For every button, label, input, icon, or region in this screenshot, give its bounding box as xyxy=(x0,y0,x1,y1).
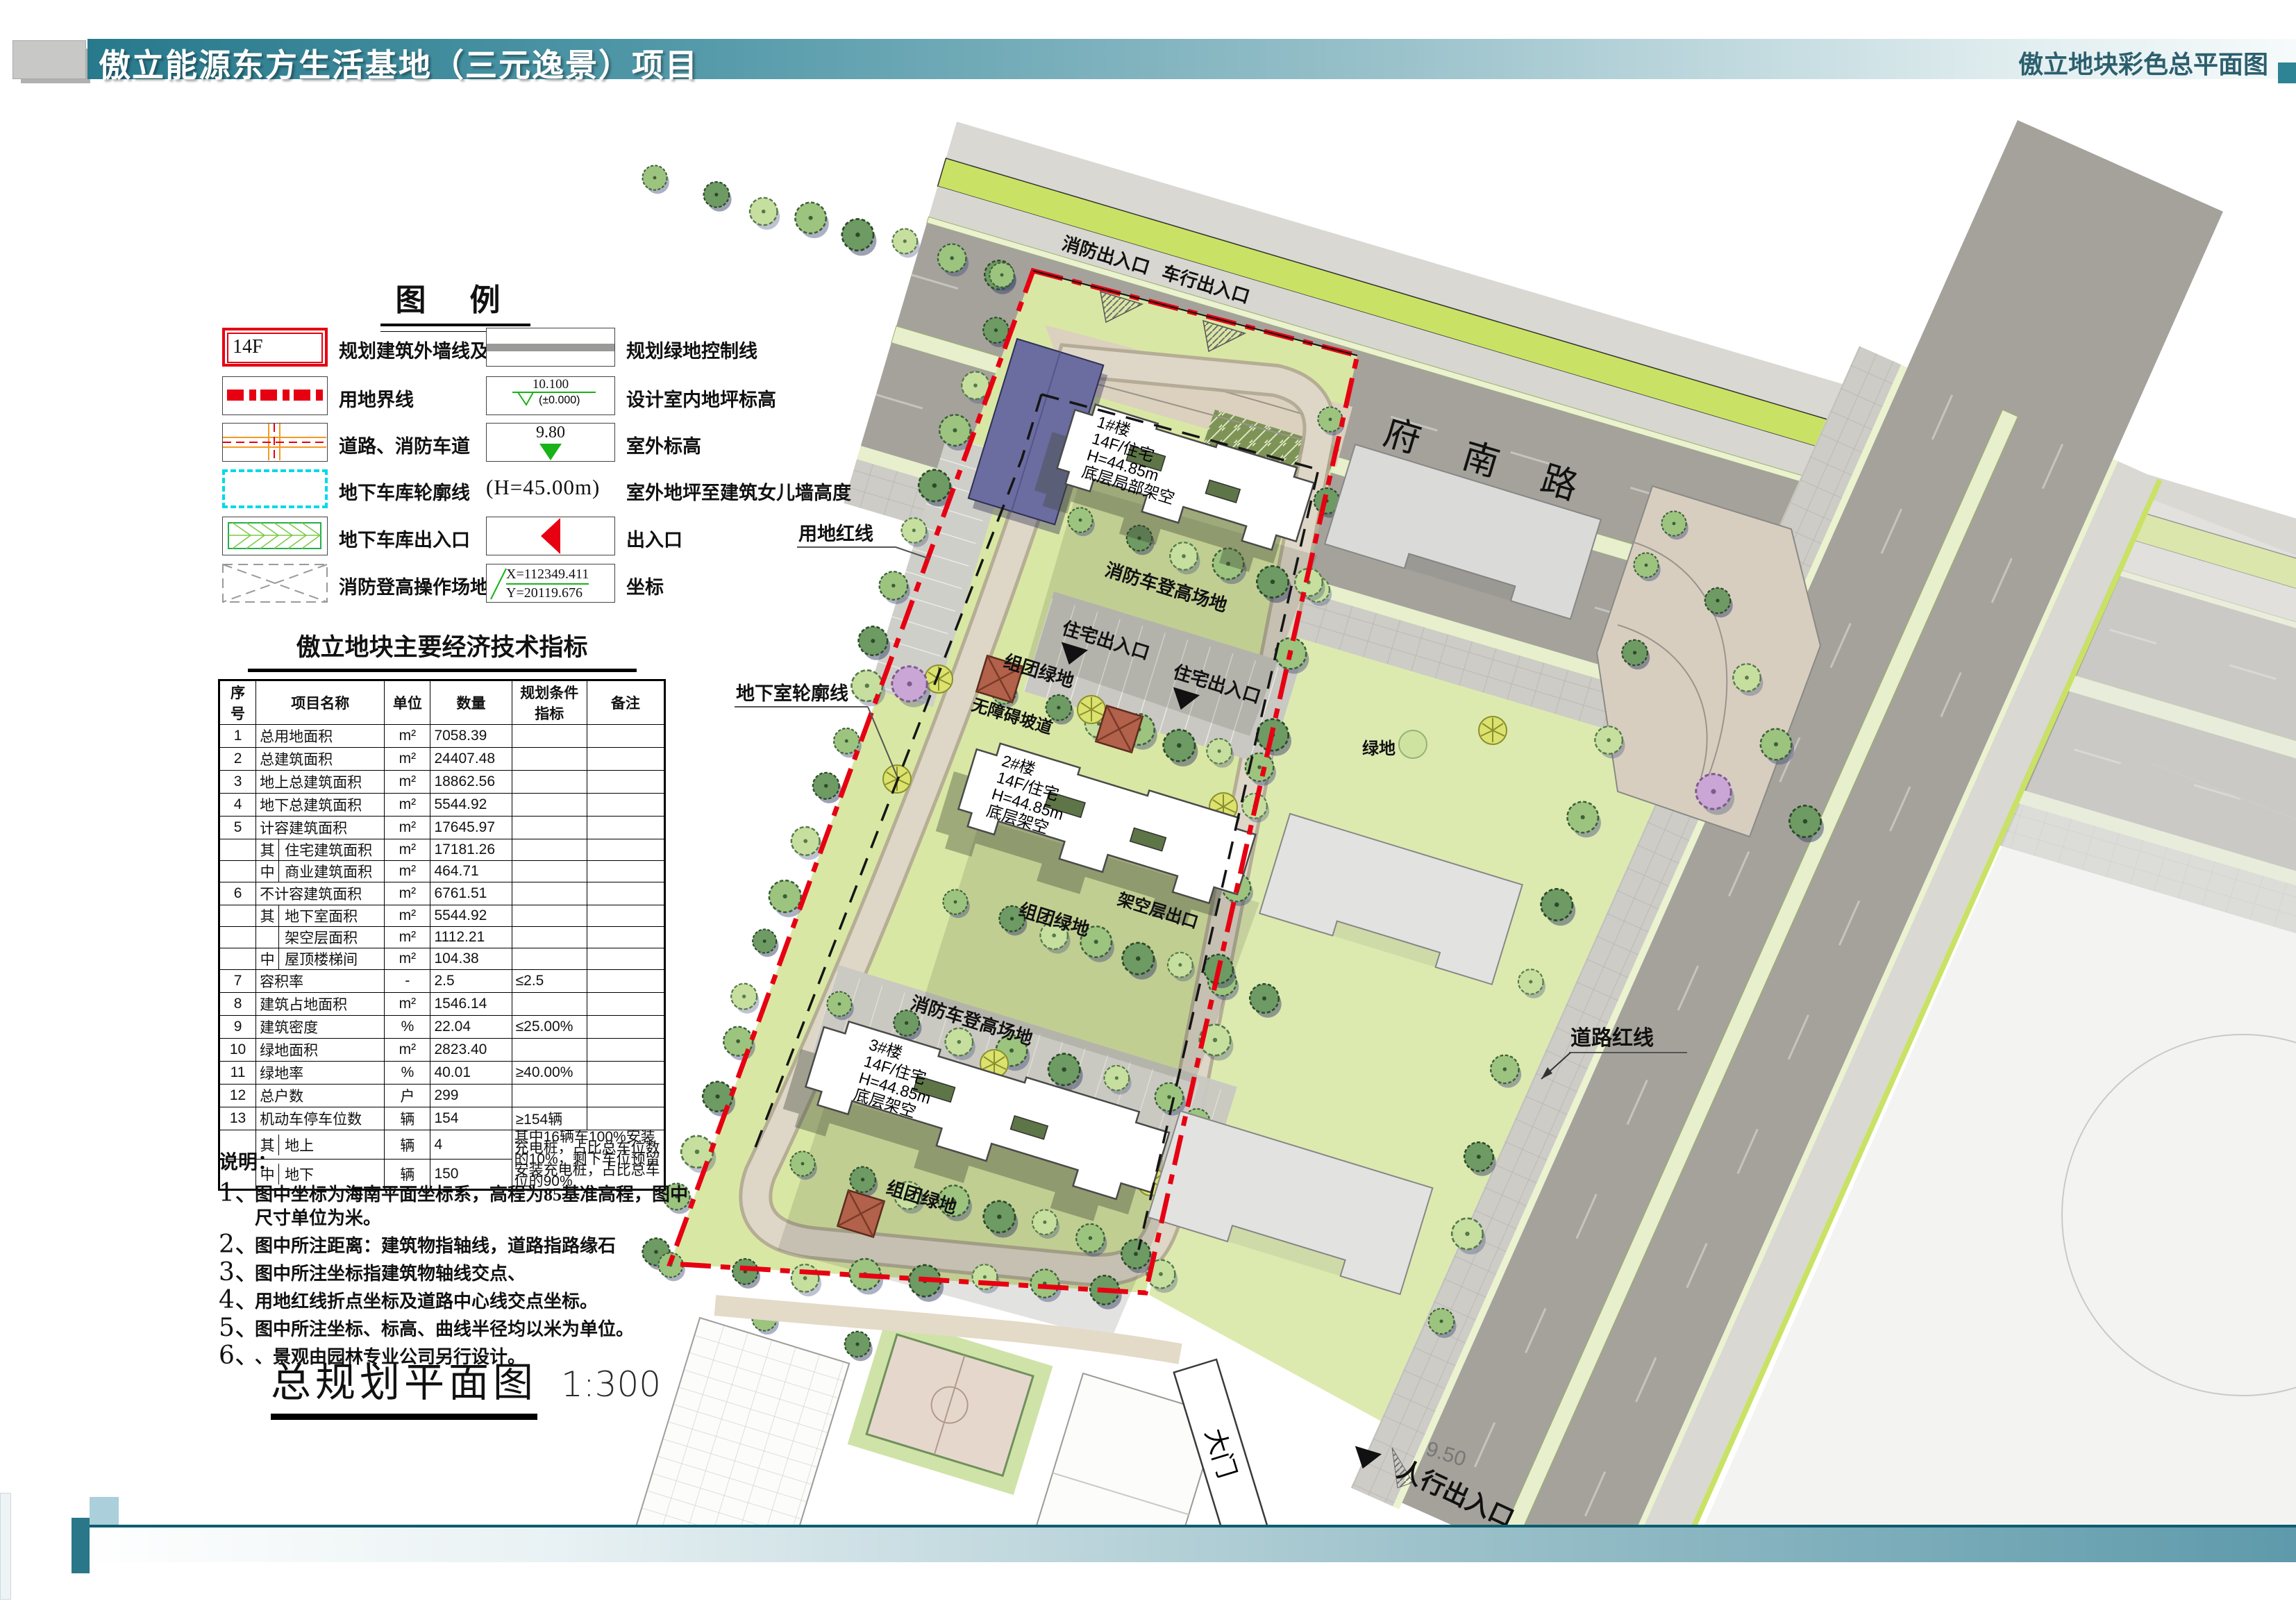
cell-plan: ≥40.00% xyxy=(512,1062,587,1085)
col-header: 数量 xyxy=(430,680,512,725)
cell-qty: 1546.14 xyxy=(430,993,512,1016)
cell-no xyxy=(219,948,256,970)
cell-unit: m² xyxy=(385,882,430,905)
corner-paper-block xyxy=(12,40,86,79)
legend-label: 消防登高操作场地 xyxy=(339,572,489,599)
cell-no: 6 xyxy=(219,882,256,905)
cell-plan xyxy=(512,817,587,839)
palm-tree xyxy=(1078,696,1105,723)
cell-plan xyxy=(512,1085,587,1107)
indicator-table: 序号 项目名称 单位 数量 规划条件指标 备注 1总用地面积m²7058.392… xyxy=(218,679,666,1191)
legend-label: 地下车库轮廓线 xyxy=(339,478,470,505)
cell-no: 13 xyxy=(219,1107,256,1130)
cell-qty: 154 xyxy=(430,1107,512,1130)
cell-qty: 17645.97 xyxy=(430,817,512,839)
cell-name: 中屋顶楼梯间 xyxy=(256,948,385,970)
col-header: 序号 xyxy=(219,680,256,725)
cell-name: 总建筑面积 xyxy=(256,748,385,771)
cell-name: 绿地率 xyxy=(256,1062,385,1085)
legend-label: 室外地坪至建筑女儿墙高度 xyxy=(626,478,851,505)
cell-no: 9 xyxy=(219,1016,256,1039)
table-row: 5计容建筑面积m²17645.97 xyxy=(219,817,665,839)
indicator-title-rule xyxy=(248,669,637,672)
cell-no: 8 xyxy=(219,993,256,1016)
table-row: 10绿地面积m²2823.40 xyxy=(219,1039,665,1062)
cell-name: 地下总建筑面积 xyxy=(256,794,385,817)
footer-accent-block xyxy=(72,1518,90,1573)
cell-qty: 17181.26 xyxy=(430,839,512,861)
cell-unit: m² xyxy=(385,839,430,861)
tree xyxy=(813,773,841,803)
tree xyxy=(703,1082,735,1116)
table-row: 其住宅建筑面积m²17181.26 xyxy=(219,839,665,861)
cell-unit: m² xyxy=(385,725,430,748)
cell-note xyxy=(587,748,664,771)
cell-name: 地上总建筑面积 xyxy=(256,771,385,794)
table-row: 架空层面积m²1112.21 xyxy=(219,927,665,948)
tree xyxy=(859,626,891,660)
plan-name: 总规划平面图 xyxy=(271,1350,537,1420)
drawing-sheet: 东府南路 xyxy=(0,0,2296,1624)
building-floors-sample: 14F xyxy=(227,333,323,363)
road-symbol xyxy=(222,423,328,462)
cell-note xyxy=(587,861,664,882)
legend-label: 用地界线 xyxy=(339,385,414,412)
cell-note xyxy=(587,1039,664,1062)
cell-unit: % xyxy=(385,1062,430,1085)
tree xyxy=(731,984,759,1014)
cell-name: 其地下室面积 xyxy=(256,905,385,927)
cell-note xyxy=(587,905,664,927)
cell-qty: 24407.48 xyxy=(430,748,512,771)
legend-title: 图 例 xyxy=(387,275,526,319)
legend-label: 地下车库出入口 xyxy=(339,525,470,552)
fire-operation-symbol xyxy=(222,564,328,603)
table-row: 12总户数户299 xyxy=(219,1085,665,1107)
cell-no: 5 xyxy=(219,817,256,839)
table-row: 7容积率-2.5≤2.5 xyxy=(219,970,665,993)
legend-label: 规划绿地控制线 xyxy=(626,336,757,363)
cell-plan xyxy=(512,882,587,905)
cell-unit: m² xyxy=(385,1039,430,1062)
col-header: 规划条件指标 xyxy=(512,680,587,725)
cell-plan xyxy=(512,748,587,771)
tree xyxy=(769,880,804,917)
cell-plan xyxy=(512,861,587,882)
cell-no xyxy=(219,927,256,948)
cell-note xyxy=(587,839,664,861)
table-row: 3地上总建筑面积m²18862.56 xyxy=(219,771,665,794)
legend-label: 室外标高 xyxy=(626,431,701,458)
cell-qty: 5544.92 xyxy=(430,905,512,927)
cell-name: 中商业建筑面积 xyxy=(256,861,385,882)
col-header: 单位 xyxy=(385,680,430,725)
tree xyxy=(723,1027,755,1060)
cell-qty: 299 xyxy=(430,1085,512,1107)
cell-note xyxy=(587,948,664,970)
outdoor-elevation-symbol: 9.80 xyxy=(486,423,615,462)
legend-label: 出入口 xyxy=(626,525,682,552)
cell-plan xyxy=(512,1039,587,1062)
note-item: 1、图中坐标为海南平面坐标系，高程为85基准高程，图中尺寸单位为米。 xyxy=(219,1180,705,1230)
tree xyxy=(750,198,780,230)
garage-entrance-symbol xyxy=(222,517,328,555)
coordinate-y: Y=20119.676 xyxy=(506,585,583,601)
outdoor-elevation-value: 9.80 xyxy=(487,424,614,442)
cell-unit: m² xyxy=(385,861,430,882)
tree xyxy=(791,827,823,860)
cell-qty: 2.5 xyxy=(430,970,512,993)
cell-unit: 户 xyxy=(385,1085,430,1107)
tree xyxy=(845,1332,873,1362)
coordinate-symbol: X=112349.411 Y=20119.676 xyxy=(486,564,615,603)
tree xyxy=(642,165,669,194)
cell-plan xyxy=(512,948,587,970)
cell-name: 机动车停车位数 xyxy=(256,1107,385,1130)
col-header: 备注 xyxy=(587,680,664,725)
cell-name: 其住宅建筑面积 xyxy=(256,839,385,861)
cell-plan xyxy=(512,725,587,748)
footer-left-strip xyxy=(0,1493,11,1600)
cell-no: 4 xyxy=(219,794,256,817)
garage-outline-symbol xyxy=(222,469,328,508)
cell-name: 绿地面积 xyxy=(256,1039,385,1062)
cell-plan: ≥154辆 xyxy=(512,1107,587,1130)
cell-name: 总户数 xyxy=(256,1085,385,1107)
cell-unit: - xyxy=(385,970,430,993)
cell-no xyxy=(219,839,256,861)
cell-unit: m² xyxy=(385,905,430,927)
table-row: 2总建筑面积m²24407.48 xyxy=(219,748,665,771)
cell-no xyxy=(219,861,256,882)
cell-note xyxy=(587,771,664,794)
cell-name: 总用地面积 xyxy=(256,725,385,748)
note-item: 5、图中所注坐标、标高、曲线半径均以米为单位。 xyxy=(219,1315,705,1341)
site-boundary-symbol xyxy=(222,376,328,415)
col-header: 项目名称 xyxy=(256,680,385,725)
cell-plan: ≤2.5 xyxy=(512,970,587,993)
tree xyxy=(795,203,828,239)
title-accent-square xyxy=(2278,62,2296,83)
cell-note xyxy=(587,993,664,1016)
cell-no: 10 xyxy=(219,1039,256,1062)
indicator-table-title: 傲立地块主要经济技术指标 xyxy=(218,628,666,663)
table-header-row: 序号 项目名称 单位 数量 规划条件指标 备注 xyxy=(219,680,665,725)
cell-qty: 5544.92 xyxy=(430,794,512,817)
cell-qty: 104.38 xyxy=(430,948,512,970)
cell-note xyxy=(587,1062,664,1085)
cell-plan xyxy=(512,927,587,948)
cell-no: 1 xyxy=(219,725,256,748)
cell-unit: % xyxy=(385,1016,430,1039)
legend-label: 道路、消防车道 xyxy=(339,431,470,458)
cell-no xyxy=(219,905,256,927)
cell-note xyxy=(587,1107,664,1130)
cell-plan xyxy=(512,993,587,1016)
cell-unit: m² xyxy=(385,993,430,1016)
cell-name: 容积率 xyxy=(256,970,385,993)
sheet-title: 傲立地块彩色总平面图 xyxy=(2018,44,2268,81)
table-row: 11绿地率%40.01≥40.00% xyxy=(219,1062,665,1085)
cell-qty: 6761.51 xyxy=(430,882,512,905)
project-title: 傲立能源东方生活基地（三元逸景）项目 xyxy=(99,40,698,86)
cell-unit: m² xyxy=(385,927,430,948)
cell-unit: m² xyxy=(385,817,430,839)
cell-note xyxy=(587,970,664,993)
tree xyxy=(842,219,877,256)
note-item: 3、图中所注坐标指建筑物轴线交点、 xyxy=(219,1259,705,1286)
table-row: 9建筑密度%22.04≤25.00% xyxy=(219,1016,665,1039)
cell-qty: 22.04 xyxy=(430,1016,512,1039)
cell-qty: 18862.56 xyxy=(430,771,512,794)
palm-tree xyxy=(1479,717,1507,744)
cell-qty: 7058.39 xyxy=(430,725,512,748)
tree xyxy=(753,930,778,957)
cell-name: 建筑占地面积 xyxy=(256,993,385,1016)
cell-note xyxy=(587,927,664,948)
table-row: 1总用地面积m²7058.39 xyxy=(219,725,665,748)
notes-section: 说明： 1、图中坐标为海南平面坐标系，高程为85基准高程，图中尺寸单位为米。2、… xyxy=(219,1147,705,1371)
table-row: 4地下总建筑面积m²5544.92 xyxy=(219,794,665,817)
cell-plan xyxy=(512,839,587,861)
cell-name: 架空层面积 xyxy=(256,927,385,948)
note-item: 4、用地红线折点坐标及道路中心线交点坐标。 xyxy=(219,1287,705,1314)
indoor-elevation-symbol: 10.100 (±0.000) xyxy=(486,376,615,415)
cell-unit: m² xyxy=(385,771,430,794)
cell-plan: ≤25.00% xyxy=(512,1016,587,1039)
cell-plan xyxy=(512,905,587,927)
basement-outline-label: 地下室轮廓线 xyxy=(736,683,848,704)
footer-band xyxy=(72,1525,2296,1562)
cell-note xyxy=(587,817,664,839)
notes-title: 说明： xyxy=(219,1147,705,1175)
cell-unit: m² xyxy=(385,794,430,817)
cell-qty: 1112.21 xyxy=(430,927,512,948)
cell-note xyxy=(587,882,664,905)
table-row: 6不计容建筑面积m²6761.51 xyxy=(219,882,665,905)
cell-qty: 2823.40 xyxy=(430,1039,512,1062)
tree xyxy=(704,182,732,212)
cell-note xyxy=(587,1016,664,1039)
table-row: 13机动车停车位数辆154≥154辆 xyxy=(219,1107,665,1130)
cell-unit: 辆 xyxy=(385,1107,430,1130)
legend-label: 坐标 xyxy=(626,572,664,599)
plan-scale: 1:300 xyxy=(561,1364,661,1405)
coordinate-x: X=112349.411 xyxy=(506,566,589,585)
table-row: 8建筑占地面积m²1546.14 xyxy=(219,993,665,1016)
cell-plan xyxy=(512,771,587,794)
cell-note xyxy=(587,725,664,748)
green-circle xyxy=(1399,730,1427,758)
cell-name: 不计容建筑面积 xyxy=(256,882,385,905)
height-note: (H=45.00m) xyxy=(486,469,615,508)
cell-unit: m² xyxy=(385,748,430,771)
elevation-zero: (±0.000) xyxy=(539,394,580,406)
table-row: 中商业建筑面积m²464.71 xyxy=(219,861,665,882)
cell-name: 计容建筑面积 xyxy=(256,817,385,839)
building-outline-symbol: 14F xyxy=(222,328,328,367)
footer-accent-square xyxy=(90,1497,119,1525)
table-row: 其地下室面积m²5544.92 xyxy=(219,905,665,927)
legend: 图 例 14F 规划建筑外墙线及层数 用地界线 xyxy=(222,275,847,665)
table-row: 中屋顶楼梯间m²104.38 xyxy=(219,948,665,970)
green-space-label: 绿地 xyxy=(1362,739,1396,758)
cell-no: 7 xyxy=(219,970,256,993)
note-item: 2、图中所注距离：建筑物指轴线，道路指路缘石 xyxy=(219,1232,705,1258)
cell-unit: m² xyxy=(385,948,430,970)
cell-qty: 40.01 xyxy=(430,1062,512,1085)
green-control-line-symbol xyxy=(486,328,615,367)
title-bar: 傲立能源东方生活基地（三元逸景）项目 傲立地块彩色总平面图 xyxy=(87,39,2296,79)
cell-note xyxy=(587,794,664,817)
cell-note xyxy=(587,1085,664,1107)
cell-plan xyxy=(512,794,587,817)
cell-no: 12 xyxy=(219,1085,256,1107)
scale-label: 总规划平面图 1:300 xyxy=(271,1350,661,1420)
cell-no: 2 xyxy=(219,748,256,771)
indicator-table-section: 傲立地块主要经济技术指标 序号 项目名称 单位 数量 规划条件指标 备注 1总用… xyxy=(218,628,666,1191)
legend-label: 设计室内地坪标高 xyxy=(626,385,776,412)
road-redline-label: 道路红线 xyxy=(1570,1027,1654,1050)
tree xyxy=(892,229,919,258)
entrance-symbol xyxy=(486,517,615,555)
cell-name: 建筑密度 xyxy=(256,1016,385,1039)
cell-no: 3 xyxy=(219,771,256,794)
cell-qty: 464.71 xyxy=(430,861,512,882)
cell-no: 11 xyxy=(219,1062,256,1085)
